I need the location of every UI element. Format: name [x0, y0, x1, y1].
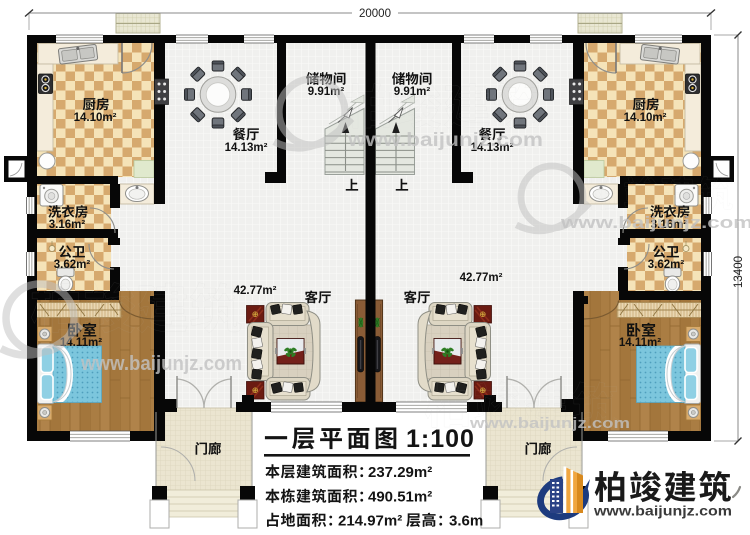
svg-text:3.62m²: 3.62m²: [648, 259, 685, 271]
svg-text:42.77m²: 42.77m²: [460, 272, 503, 284]
svg-text:www.baijunjz.com: www.baijunjz.com: [560, 213, 750, 232]
svg-text:1:100: 1:100: [406, 425, 475, 453]
svg-text:9.91m²: 9.91m²: [394, 86, 431, 98]
svg-text:13400: 13400: [733, 256, 745, 288]
svg-text:14.13m²: 14.13m²: [225, 142, 268, 154]
svg-text:490.51m²: 490.51m²: [368, 489, 432, 506]
svg-text:14.10m²: 14.10m²: [74, 112, 117, 124]
svg-text:www.baijunjz.com: www.baijunjz.com: [593, 504, 732, 519]
svg-text:www.baijunjz.com: www.baijunjz.com: [347, 130, 543, 151]
svg-text:14.11m²: 14.11m²: [619, 337, 661, 349]
svg-text:www.baijunjz.com: www.baijunjz.com: [80, 353, 242, 375]
svg-text:www.baijunjz.com: www.baijunjz.com: [469, 415, 630, 432]
svg-text:3.16m²: 3.16m²: [49, 219, 86, 231]
svg-text:3.62m²: 3.62m²: [54, 259, 91, 271]
svg-text:3.6m: 3.6m: [449, 513, 483, 530]
svg-text:237.29m²: 237.29m²: [368, 464, 432, 481]
svg-text:14.10m²: 14.10m²: [624, 112, 667, 124]
svg-text:42.77m²: 42.77m²: [234, 285, 277, 297]
svg-text:20000: 20000: [359, 8, 391, 20]
svg-text:214.97m²: 214.97m²: [338, 513, 402, 530]
